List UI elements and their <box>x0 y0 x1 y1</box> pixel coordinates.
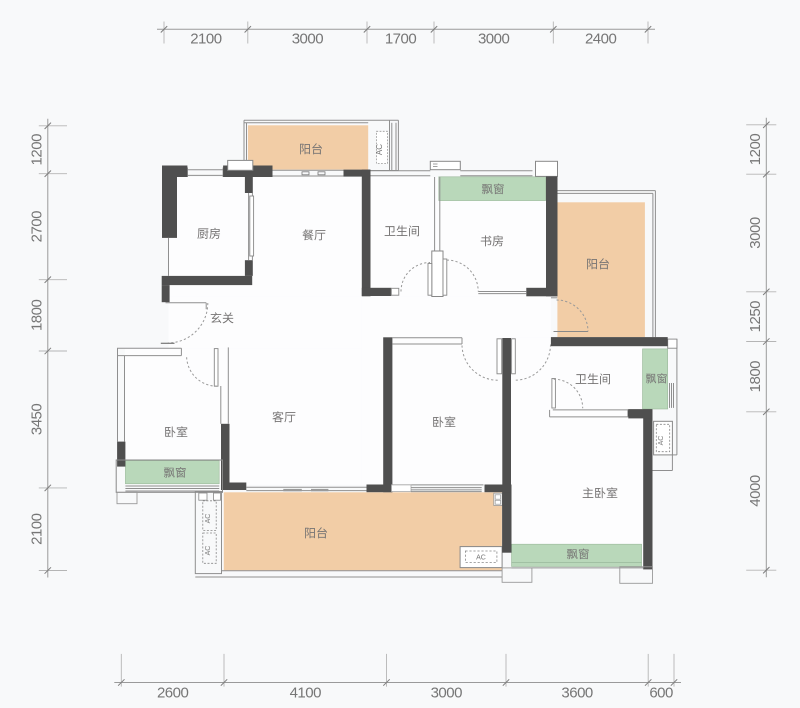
svg-text:AC: AC <box>205 546 212 556</box>
svg-text:2100: 2100 <box>28 513 45 545</box>
svg-text:4100: 4100 <box>290 684 322 701</box>
svg-text:3000: 3000 <box>747 217 764 249</box>
svg-text:1200: 1200 <box>28 134 45 166</box>
svg-text:2600: 2600 <box>157 684 189 701</box>
svg-text:AC: AC <box>375 144 384 155</box>
svg-text:1700: 1700 <box>385 30 417 47</box>
svg-text:1250: 1250 <box>747 301 764 333</box>
svg-text:3600: 3600 <box>561 684 593 701</box>
svg-text:AC: AC <box>658 436 665 446</box>
svg-text:2100: 2100 <box>190 30 222 47</box>
svg-text:1800: 1800 <box>28 300 45 332</box>
svg-text:1200: 1200 <box>747 134 764 166</box>
svg-text:1800: 1800 <box>747 361 764 393</box>
svg-text:3450: 3450 <box>28 404 45 436</box>
svg-text:600: 600 <box>649 684 673 701</box>
svg-text:3000: 3000 <box>292 30 324 47</box>
svg-text:AC: AC <box>205 514 212 524</box>
svg-text:3000: 3000 <box>478 30 510 47</box>
svg-text:4000: 4000 <box>747 475 764 507</box>
svg-text:3000: 3000 <box>431 684 463 701</box>
svg-text:2400: 2400 <box>585 30 617 47</box>
svg-text:2700: 2700 <box>28 211 45 243</box>
svg-text:AC: AC <box>476 555 486 562</box>
